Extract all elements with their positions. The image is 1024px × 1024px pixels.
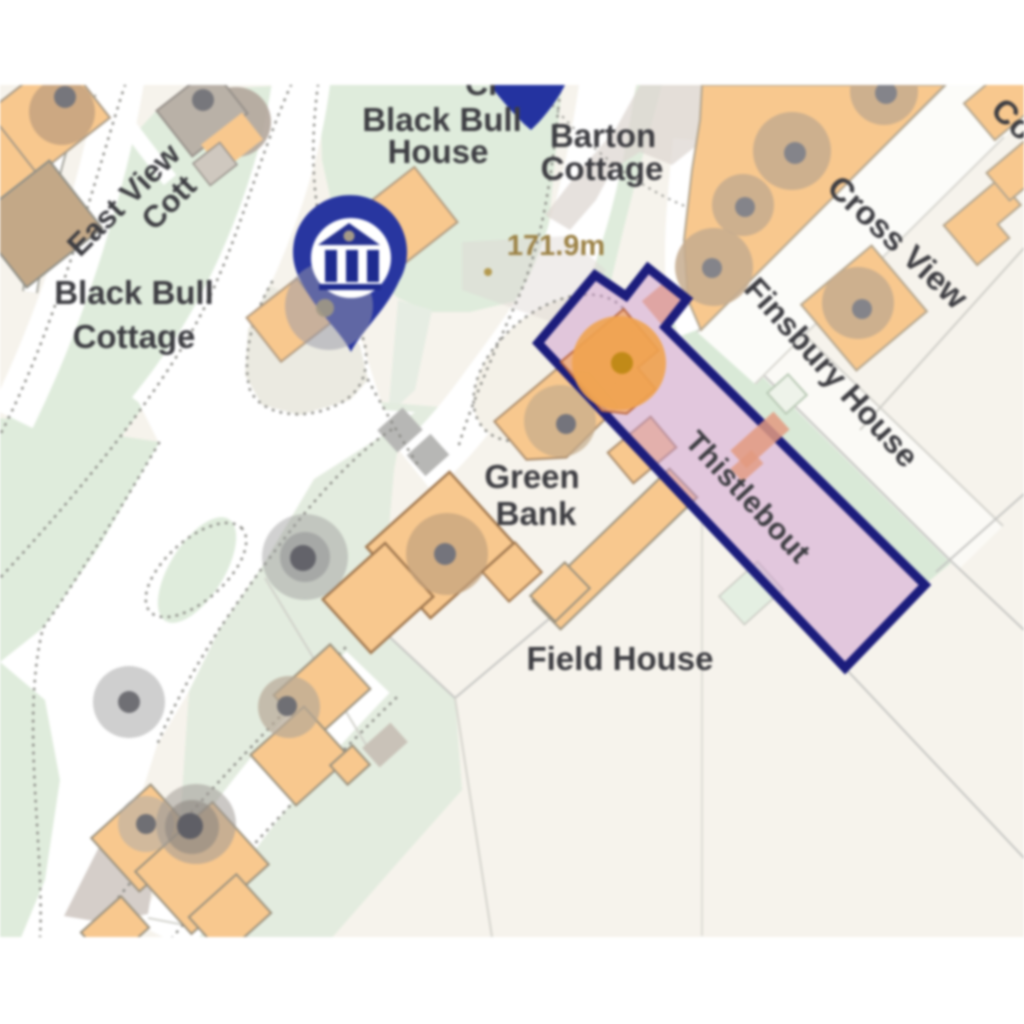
svg-text:Bank: Bank [496, 495, 577, 532]
svg-text:Black Bull: Black Bull [54, 274, 214, 311]
svg-text:Barton: Barton [550, 117, 656, 154]
svg-text:Cottage: Cottage [73, 318, 196, 355]
svg-text:171.9m: 171.9m [507, 230, 605, 262]
svg-text:Green: Green [484, 458, 579, 495]
svg-text:Cottage: Cottage [541, 150, 664, 187]
svg-text:Field House: Field House [526, 640, 713, 677]
svg-text:House: House [388, 133, 489, 170]
